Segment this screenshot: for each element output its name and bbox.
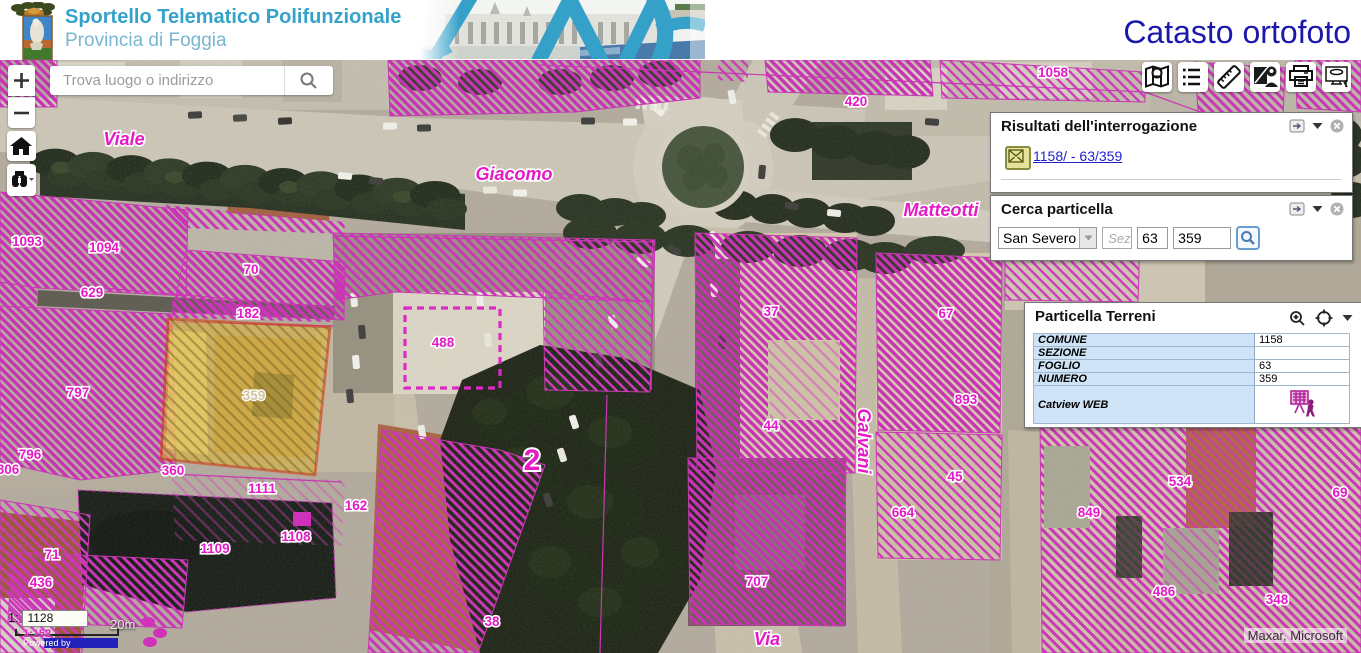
svg-text:Viale: Viale (103, 129, 144, 149)
svg-text:1094: 1094 (89, 240, 120, 255)
svg-text:Matteotti: Matteotti (904, 200, 980, 220)
svg-text:436: 436 (30, 575, 53, 590)
svg-text:70: 70 (243, 262, 258, 277)
svg-text:348: 348 (1266, 592, 1289, 607)
svg-text:1111: 1111 (248, 481, 276, 496)
svg-text:359: 359 (243, 388, 266, 403)
svg-text:44: 44 (763, 418, 779, 433)
svg-text:486: 486 (1153, 584, 1176, 599)
svg-text:420: 420 (845, 94, 868, 109)
svg-text:629: 629 (81, 285, 104, 300)
svg-text:1109: 1109 (200, 541, 229, 556)
svg-text:Giacomo: Giacomo (475, 164, 552, 184)
svg-text:182: 182 (237, 306, 260, 321)
svg-text:162: 162 (345, 498, 368, 513)
svg-text:45: 45 (947, 469, 963, 484)
svg-text:1093: 1093 (12, 234, 43, 249)
svg-text:664: 664 (892, 505, 915, 520)
svg-text:796: 796 (19, 447, 42, 462)
svg-text:534: 534 (1169, 474, 1192, 489)
svg-text:1058: 1058 (1038, 65, 1069, 80)
svg-text:2: 2 (524, 444, 541, 477)
svg-text:849: 849 (1078, 505, 1101, 520)
svg-text:38: 38 (484, 614, 500, 629)
svg-text:806: 806 (0, 462, 20, 477)
svg-text:67: 67 (938, 306, 953, 321)
svg-text:797: 797 (67, 385, 90, 400)
svg-text:37: 37 (763, 304, 778, 319)
svg-text:893: 893 (955, 392, 978, 407)
svg-text:69: 69 (1332, 485, 1347, 500)
svg-text:360: 360 (162, 463, 185, 478)
svg-text:488: 488 (432, 335, 455, 350)
svg-text:707: 707 (746, 574, 769, 589)
svg-text:71: 71 (44, 547, 60, 562)
svg-text:Galvani: Galvani (854, 408, 874, 474)
svg-text:1108: 1108 (281, 529, 311, 544)
svg-text:Via: Via (754, 629, 780, 649)
